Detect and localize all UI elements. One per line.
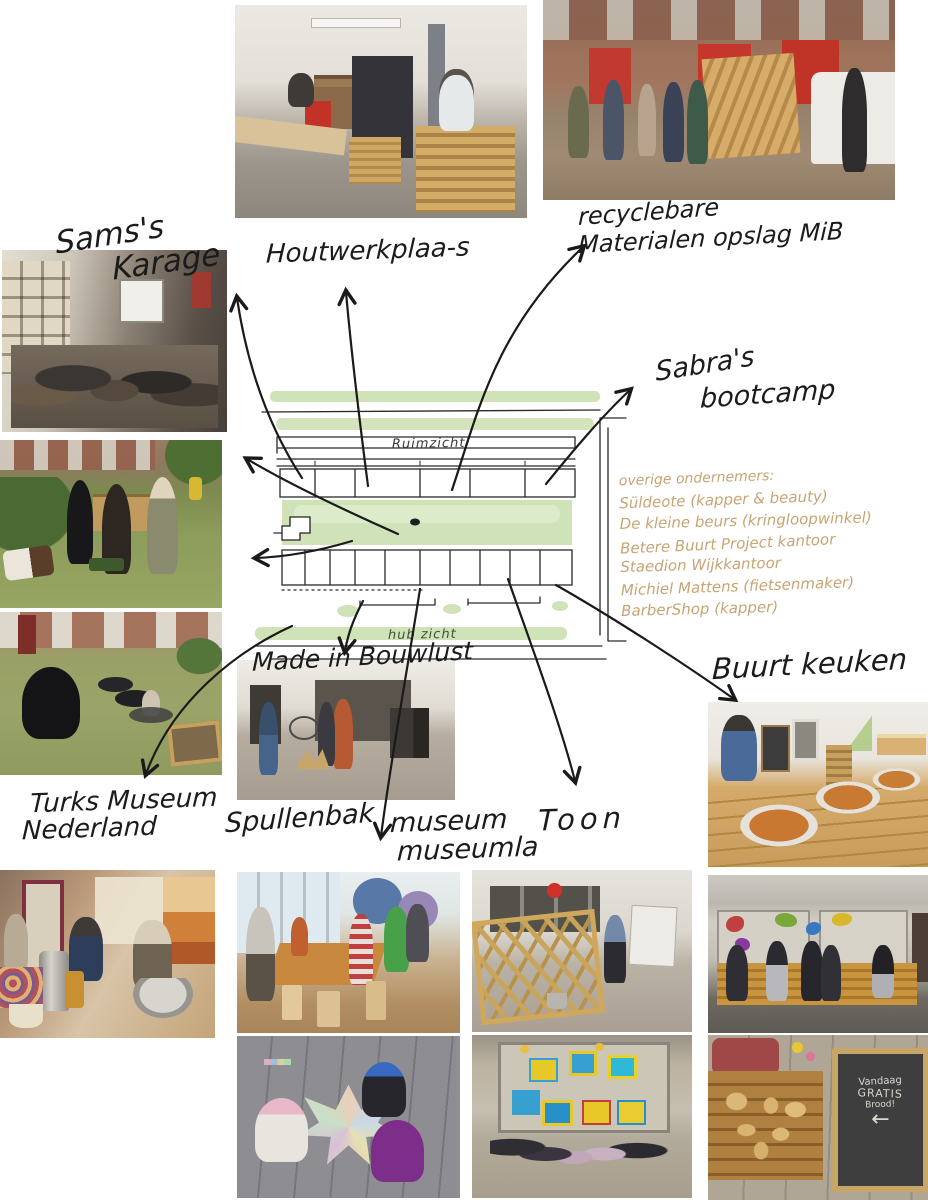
worker-right [439,75,474,130]
photo-made-in-bouwlust [237,660,455,800]
pedestrian-2 [603,80,624,160]
adult-left [246,907,275,1000]
dark-red-door [18,615,36,654]
slide-yellow [189,477,202,501]
teen-2-gray [766,941,788,1001]
neighbourhood-map-sketch: Ruimzicht hub zicht [230,385,628,673]
red-banner [191,272,211,308]
pallets-on-cart [702,53,800,159]
label-museum-line2: museumla [397,834,539,867]
warm-light-1 [520,1045,529,1053]
visitor-1 [4,914,28,971]
label-toon: Toon [538,803,626,836]
photo-garden-lawn [0,612,222,775]
piano-man [390,708,429,758]
cook-woman [721,715,757,781]
kid-purple-shirt [371,1120,425,1182]
photo-chalk-star [237,1036,460,1198]
kitchen-hatch [792,719,819,762]
smiley-board-1 [529,1058,558,1082]
photo-buurt-keuken [708,702,928,867]
photo-bread-stand: Vandaag GRATIS Brood! ← [708,1035,928,1200]
patterned-cloth [0,967,43,1007]
bicycle [289,716,319,740]
chair-1 [282,985,302,1020]
figure-beige-scarf [147,477,178,574]
ceiling-light [311,18,401,29]
paint-splash-red [726,916,744,932]
cart-puller [687,80,708,164]
cream-bowl [9,1004,43,1028]
street-name-top: Ruimzicht [392,436,466,452]
flower-yellow [792,1042,803,1054]
woman-sitting [22,667,80,739]
collage-canvas: Vandaag GRATIS Brood! ← [0,0,928,1200]
person-dark-skirt [604,915,626,983]
teen-5 [872,945,894,999]
photo-garden-planters [0,440,222,608]
ondernemers-list: overige ondernemers: Süldeote (kapper & … [619,465,927,621]
chair-2 [317,991,339,1026]
white-screen [629,904,678,967]
photo-bench [708,875,928,1033]
paint-splash-green [775,913,797,927]
kids-row [490,1120,675,1188]
label-turks-museum-line2: Nederland [22,814,158,845]
plate-1 [739,804,819,847]
kid-orange [291,917,309,956]
figure-black [67,480,94,564]
label-buurt-keuken: Buurt keuken [712,645,908,685]
soil-bags [3,544,56,581]
brick-facade [0,440,155,470]
seated-crowd [11,345,218,429]
bread-table [877,738,926,755]
pallet-cart [349,137,402,184]
metal-bucket [547,993,567,1009]
photo-smiley-kids [472,1035,692,1198]
chalk-arrow-left: ← [838,1110,922,1130]
toddler-ring [129,707,173,723]
plate-2 [815,781,882,814]
seedling-tray [89,558,125,571]
photo-houtwerkplaats [235,5,527,218]
worker-left [288,73,314,107]
kid-stripes [349,914,374,985]
chalkboard-sign: Vandaag GRATIS Brood! ← [832,1048,928,1192]
photo-turks-museum [0,870,215,1038]
honey-jar [65,971,84,1008]
bread-loaves [717,1085,815,1168]
metal-bowl [133,978,193,1018]
chalkboard-menu [761,725,789,772]
photo-wooden-machine [472,870,692,1032]
flower-pink [806,1052,815,1062]
teen-3 [801,941,823,1001]
man-in-black [842,68,867,172]
label-spullenbak: Spullenbak [225,800,375,838]
person-orange [333,699,353,769]
smiley-board-2 [569,1051,598,1075]
kid-blue-cap [362,1062,407,1117]
kid-green [384,907,409,971]
photo-recyclebare-materialen [543,0,895,200]
label-sabras-line2: bootcamp [700,376,836,413]
person-jeans [259,702,279,775]
plate-3 [872,768,921,791]
kid-pink-cap [255,1098,309,1163]
pedestrian-3 [638,84,656,156]
kid-gray [406,904,428,962]
teen-1 [726,945,748,1002]
smiley-board-3 [608,1055,637,1079]
red-lamp [547,883,562,898]
chalk-sticks [264,1059,291,1065]
smiley-board-4 [512,1090,541,1114]
red-cushion [712,1038,779,1074]
stool [366,981,386,1020]
machine-frame [472,909,606,1025]
green-hedge [173,635,222,677]
photo-craft-room [237,872,460,1033]
pedestrian-4 [663,82,684,162]
pallet-stack-right [416,126,515,211]
pedestrian-1 [568,86,589,158]
brick-windows [543,0,895,40]
teen-4 [821,945,841,1002]
wood-frame-square [167,720,222,766]
label-houtwerkplaats: Houtwerkplaa-s [266,234,470,268]
